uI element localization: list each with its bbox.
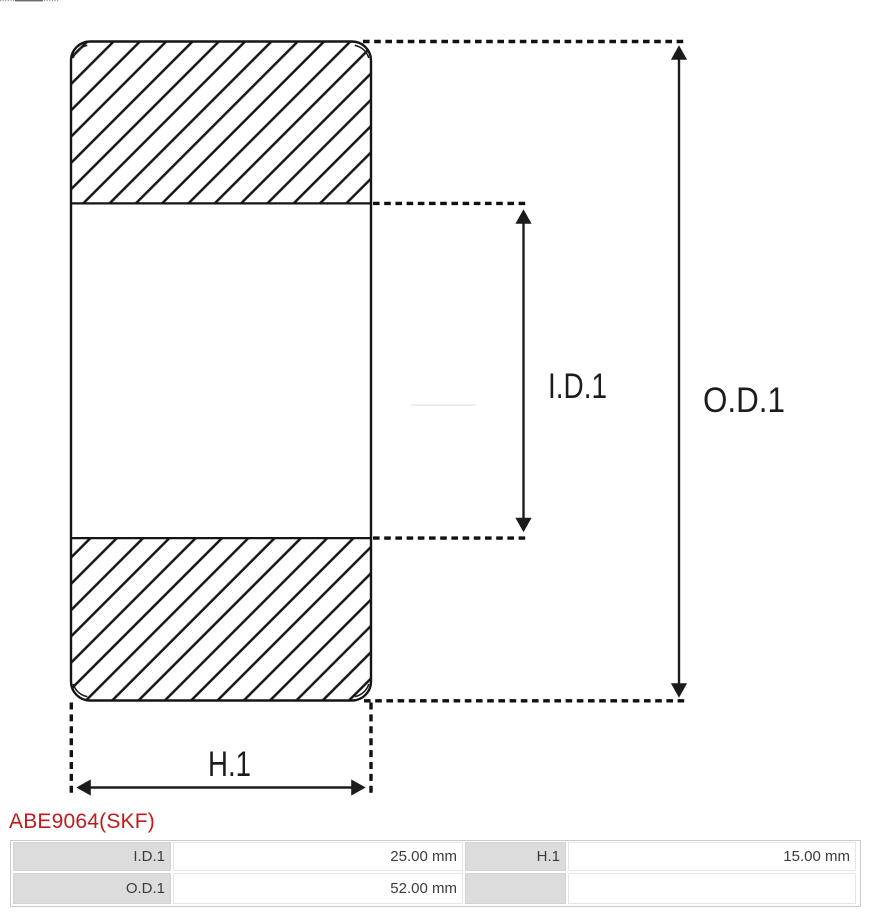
svg-text:O.D.1: O.D.1 (703, 381, 785, 420)
svg-text:H.1: H.1 (208, 745, 251, 784)
svg-text:I.D.1: I.D.1 (548, 367, 607, 406)
